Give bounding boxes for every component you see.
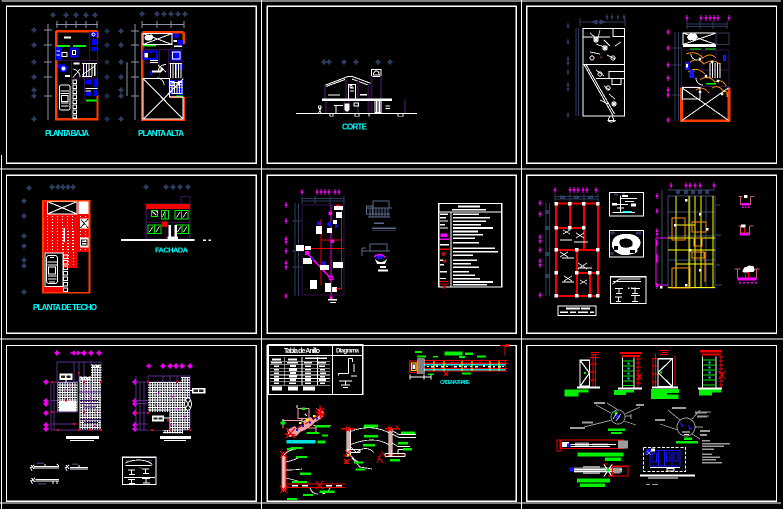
svg-text:Diagrama: Diagrama [336, 349, 360, 355]
svg-text:CORTE: CORTE [342, 123, 368, 132]
svg-text:Tabla de Anillo: Tabla de Anillo [284, 348, 320, 355]
svg-text:PLANTA BAJA: PLANTA BAJA [45, 129, 89, 138]
svg-text:PLANTA ALTA: PLANTA ALTA [138, 129, 184, 138]
svg-text:CADENA-TRABE: CADENA-TRABE [440, 380, 470, 386]
svg-text:PLANTA DE TECHO: PLANTA DE TECHO [33, 303, 97, 312]
svg-text:FACHADA: FACHADA [155, 246, 189, 255]
